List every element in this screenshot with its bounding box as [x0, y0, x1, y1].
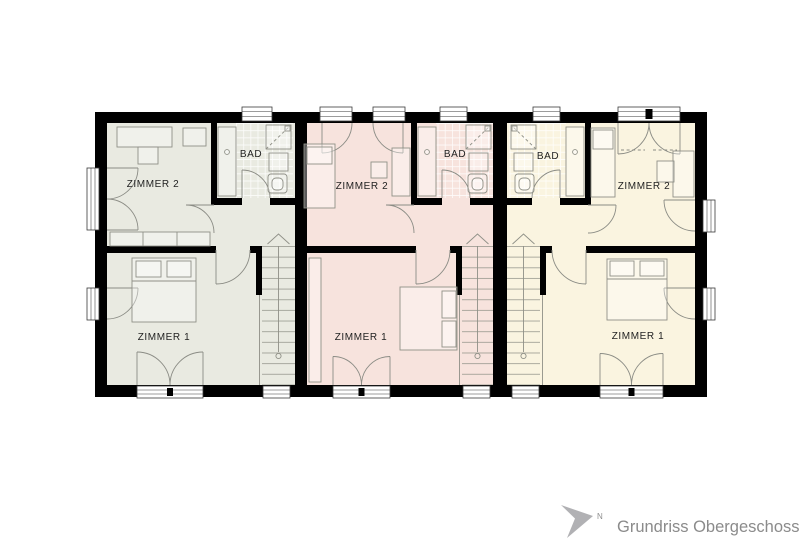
chair — [657, 161, 674, 182]
window-south — [463, 386, 490, 398]
bath-cabinet — [269, 153, 288, 171]
room-label-zimmer1: ZIMMER 1 — [612, 331, 665, 342]
window-mullion-post — [646, 109, 653, 119]
staircase — [260, 234, 296, 385]
room-label-zimmer2: ZIMMER 2 — [336, 181, 389, 192]
pillow — [167, 261, 191, 277]
window-north — [373, 107, 405, 121]
room-label-bad: BAD — [240, 149, 262, 160]
room-label-bad: BAD — [444, 149, 466, 160]
window-north — [320, 107, 352, 121]
window-west — [87, 288, 99, 320]
pillow — [640, 261, 664, 276]
room-label-zimmer2: ZIMMER 2 — [618, 181, 671, 192]
door-post — [167, 388, 173, 396]
pillow — [442, 321, 456, 347]
bath-cabinet — [514, 153, 533, 171]
desk — [392, 148, 410, 196]
washbasin-counter — [218, 127, 236, 196]
washbasin-counter — [418, 127, 436, 196]
cabinet — [183, 128, 206, 146]
window-north — [533, 107, 560, 121]
pillow — [593, 130, 613, 149]
plan-caption: Grundriss Obergeschoss — [617, 518, 800, 536]
desk — [117, 127, 172, 147]
door-post — [359, 388, 365, 396]
north-arrow-label: N — [597, 512, 603, 521]
room-label-zimmer2: ZIMMER 2 — [127, 179, 180, 190]
washbasin — [573, 150, 578, 155]
chair — [371, 162, 387, 178]
title-block: N Grundriss Obergeschoss — [561, 505, 800, 538]
shower-drain — [512, 126, 517, 131]
shower-drain — [485, 126, 490, 131]
toilet-bowl — [472, 178, 483, 190]
staircase — [460, 234, 494, 385]
pillow — [307, 147, 332, 164]
room-label-zimmer1: ZIMMER 1 — [138, 332, 191, 343]
window-south — [263, 386, 290, 398]
pillow — [442, 291, 456, 318]
window-east — [703, 288, 715, 320]
unit-left: ZIMMER 2 BAD ZIMMER 1 — [107, 123, 295, 385]
unit-right: ZIMMER 2 BAD ZIMMER 1 — [507, 123, 695, 385]
room-label-zimmer1: ZIMMER 1 — [335, 332, 388, 343]
desk — [673, 151, 694, 197]
window-east — [703, 200, 715, 232]
washbasin — [225, 150, 230, 155]
washbasin — [425, 150, 430, 155]
door-post — [629, 388, 635, 396]
north-arrow-icon — [561, 505, 593, 538]
unit-middle: ZIMMER 2 BAD ZIMMER 1 — [304, 123, 493, 385]
bath-cabinet — [469, 153, 488, 171]
window-north — [440, 107, 467, 121]
shower-drain — [285, 126, 290, 131]
window-south — [512, 386, 539, 398]
wardrobe — [309, 258, 321, 382]
pillow — [610, 261, 634, 276]
window-west — [87, 168, 99, 230]
sideboard — [110, 232, 210, 246]
staircase — [507, 234, 543, 385]
toilet-bowl — [272, 178, 283, 190]
chair — [138, 147, 158, 164]
window-north — [242, 107, 272, 121]
room-label-bad: BAD — [537, 151, 559, 162]
toilet-bowl — [519, 178, 530, 190]
washbasin-counter — [566, 127, 584, 196]
pillow — [136, 261, 161, 277]
floor-plan-canvas: ZIMMER 2 BAD ZIMMER 1 — [0, 0, 800, 551]
